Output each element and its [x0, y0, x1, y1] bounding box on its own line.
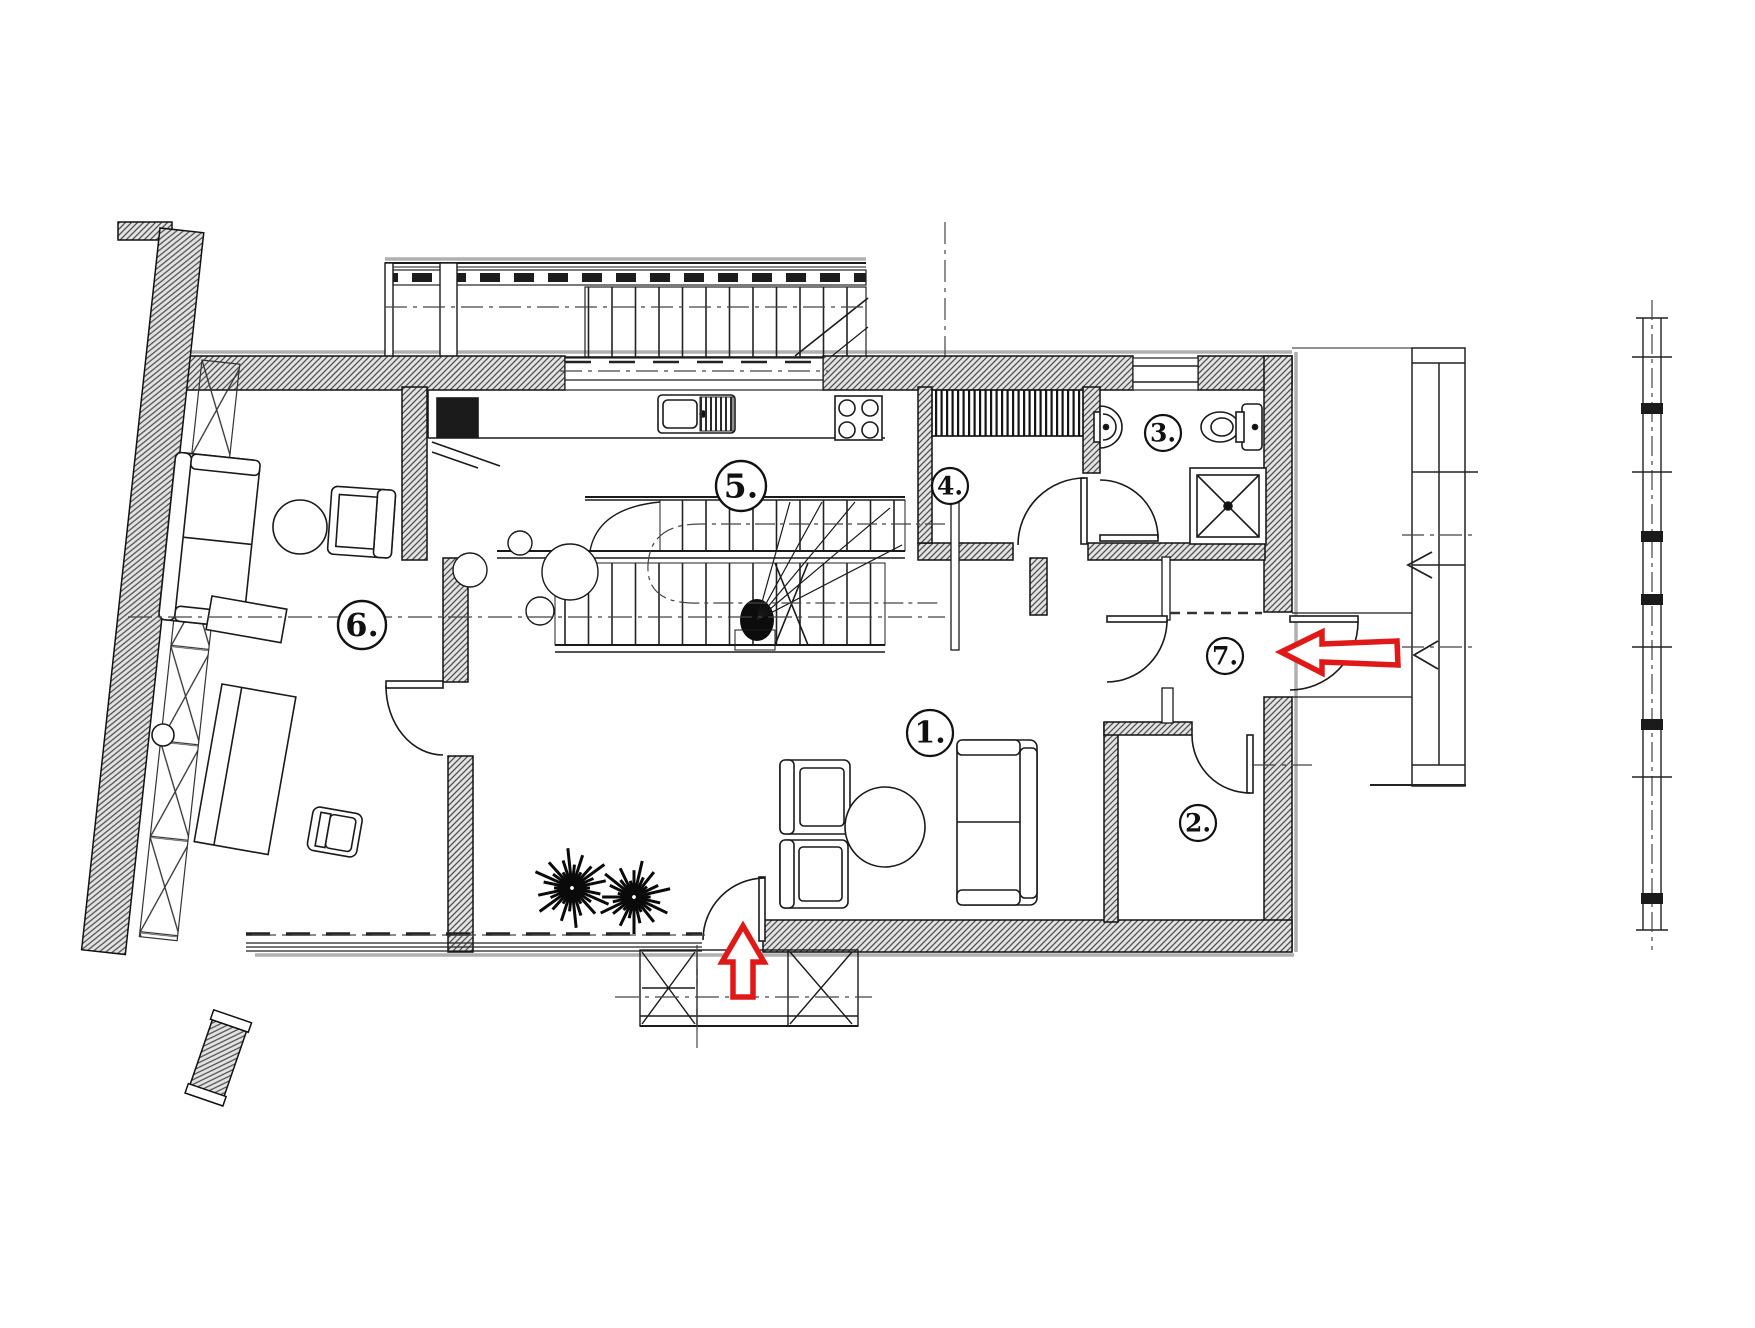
exterior-marker [152, 724, 174, 746]
hanging-clothes-icon [932, 390, 1083, 436]
washbasin-icon [1094, 406, 1122, 448]
shower-icon [1190, 468, 1266, 544]
shelf-icon [206, 596, 287, 643]
room-number: 6. [345, 606, 378, 644]
wall-room2-top [1104, 722, 1192, 735]
windows [246, 358, 1198, 951]
terrace-icon [1292, 348, 1478, 786]
room-number: 4. [937, 472, 963, 501]
toilet-icon [1201, 404, 1262, 450]
direction-chevron-icon [1414, 641, 1438, 669]
living-room [780, 740, 1037, 908]
desk-chair-icon [306, 806, 363, 858]
desk-icon [194, 684, 296, 855]
armchair-icon [327, 486, 396, 558]
room-label-1: 1. [907, 710, 953, 756]
window-room6-south [246, 934, 702, 951]
door-bathroom [1100, 480, 1158, 541]
entry-arrow-up-icon [722, 926, 764, 997]
door-hall-to-room7 [1107, 616, 1167, 682]
room-label-2: 2. [1180, 805, 1216, 841]
railing [393, 270, 866, 285]
wall-room4-left [918, 387, 932, 543]
door-room4 [1018, 478, 1087, 545]
door-room2 [1192, 735, 1253, 793]
door-garden-entrance [703, 877, 765, 941]
entry-arrow-left-icon [1281, 632, 1398, 673]
wall-room2-left [1104, 723, 1118, 922]
facade-section [1632, 300, 1672, 950]
plant-icon [601, 861, 670, 934]
room-label-3: 3. [1145, 415, 1181, 451]
wall-pier [448, 756, 473, 952]
armchair-icon [780, 760, 850, 834]
balcony-icon [385, 222, 945, 358]
stove-icon [835, 396, 882, 440]
refrigerator-icon [437, 398, 478, 437]
room-number: 2. [1185, 809, 1211, 838]
kitchen [428, 390, 885, 468]
wall-top-mid [823, 356, 1133, 390]
chair-icon [508, 531, 532, 555]
exterior-stairs-icon [585, 287, 866, 357]
chair-icon [526, 597, 554, 625]
sofa-icon [957, 740, 1037, 905]
room-number: 7. [1212, 642, 1238, 671]
wall-right-lower [1264, 697, 1292, 950]
kitchen-sink-icon [658, 395, 735, 433]
room4-closet [932, 390, 1083, 436]
room-label-7: 7. [1207, 638, 1243, 674]
room-label-5: 5. [716, 461, 766, 511]
door-room6 [386, 681, 443, 755]
round-table-icon [542, 544, 598, 600]
room-label-4: 4. [932, 468, 968, 504]
stairs-icon [453, 497, 945, 652]
floor-plan-drawing: 1. 2. 3. 4. 5. 6. 7. [0, 0, 1755, 1328]
wall-corridor-b [1088, 543, 1265, 560]
reference-axes [128, 617, 1312, 1048]
wall-room6-right-upper [402, 387, 427, 560]
chair-icon [453, 553, 487, 587]
armchair-icon [780, 840, 848, 908]
window-bathroom [1133, 358, 1198, 390]
room-number: 3. [1150, 419, 1176, 448]
wall-right-upper [1264, 356, 1292, 612]
plant-icon [535, 848, 608, 928]
floor-plan: 1. 2. 3. 4. 5. 6. 7. [0, 0, 1755, 1328]
wall-bottom-right [763, 920, 1292, 952]
window-kitchen [560, 358, 828, 390]
coffee-table-icon [845, 787, 925, 867]
room-number: 1. [914, 716, 945, 751]
wall-corridor-a [918, 543, 1013, 560]
room-number: 5. [724, 467, 758, 506]
room-label-6: 6. [338, 601, 386, 649]
wall-detached-segment [185, 1010, 251, 1106]
wall-stub-hall [1030, 558, 1047, 615]
table-icon [273, 500, 327, 554]
